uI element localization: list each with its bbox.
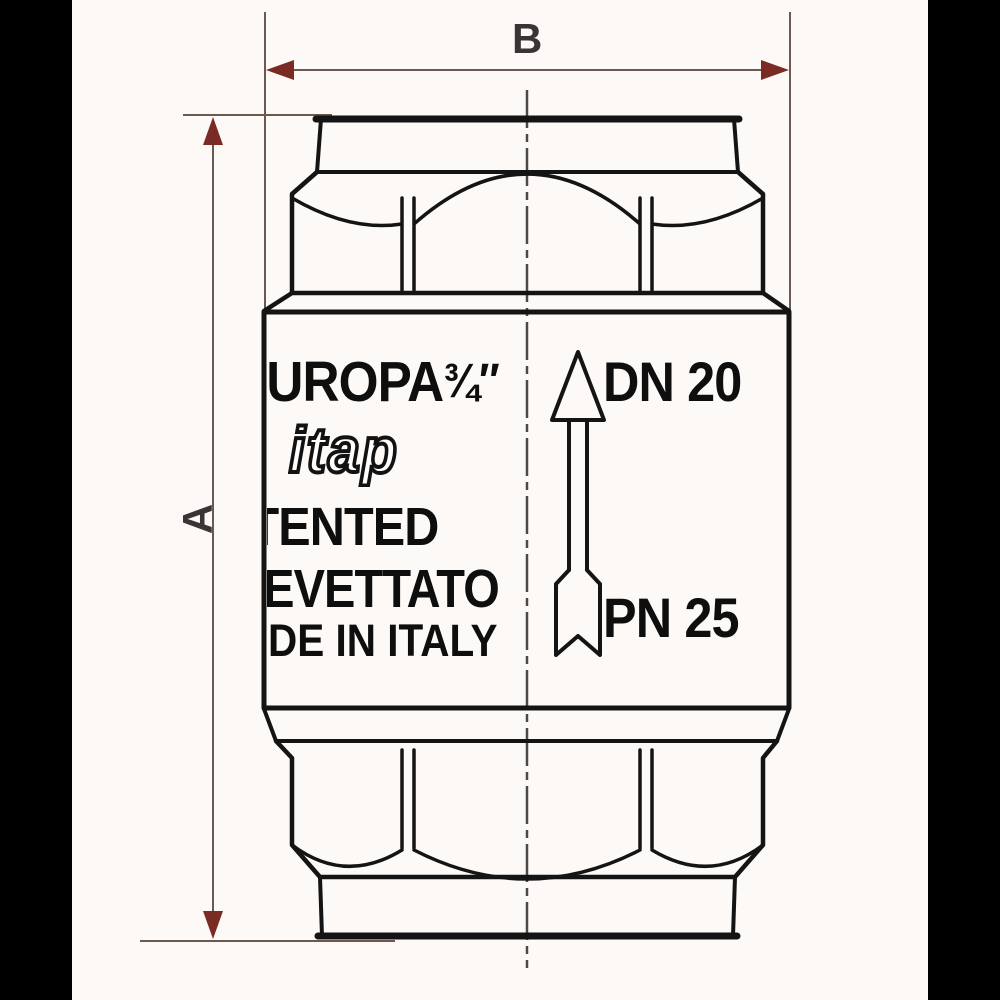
dn-rating-marking: DN 20	[603, 354, 741, 410]
dim-a-arrowhead-bottom-icon	[203, 911, 223, 939]
pn-rating-marking: PN 25	[603, 590, 739, 646]
brand-marking: EUROPA	[267, 354, 443, 411]
dimension-label-a: A	[177, 504, 219, 534]
dimension-label-b: B	[512, 18, 542, 60]
brevettato-marking: BREVETTATO	[267, 562, 499, 616]
size-marking: ¾″	[443, 358, 500, 406]
itap-logo: itap	[289, 418, 399, 482]
patented-marking: PATENTED	[267, 500, 439, 554]
dim-b-arrowhead-left-icon	[266, 60, 294, 80]
letterbox-left	[0, 0, 72, 1000]
dim-b-arrowhead-right-icon	[761, 60, 789, 80]
letterbox-right	[928, 0, 1000, 1000]
valve-body-markings: EUROPA ¾″ itap PATENTED BREVETTATO MADE …	[267, 312, 785, 708]
valve-technical-drawing: A B EUROPA ¾″ itap PATENTED BREVETTATO M…	[0, 0, 1000, 1000]
dim-a-arrowhead-top-icon	[203, 117, 223, 145]
made-in-italy-marking: MADE IN ITALY	[267, 618, 498, 663]
